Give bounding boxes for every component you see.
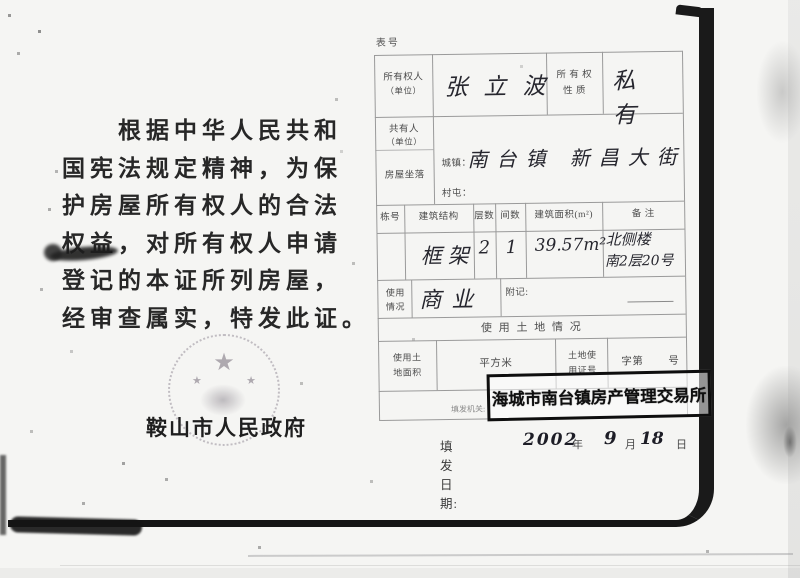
ownership-value: 私有 (612, 61, 683, 130)
cell-remark-line2: 南2层20号 (605, 250, 674, 271)
land-cert-suffix: 号 (668, 353, 679, 368)
cell-area: 39.57m² (535, 235, 607, 256)
issuing-org-label: 填发机关: (451, 403, 485, 414)
preamble-line: 权益，对所有权人申请 (62, 225, 402, 263)
land-area-label: 地面积 (382, 365, 432, 379)
col-header-building-no: 栋号 (376, 209, 404, 223)
transaction-office-stamp: 海城市南台镇房产管理交易所 (487, 370, 712, 422)
ink-blob-bottom-left (10, 516, 142, 535)
ownership-label: 性 质 (548, 82, 600, 97)
land-section-title: 使 用 土 地 情 况 (378, 317, 686, 337)
col-header-floors: 层数 (473, 207, 495, 221)
national-emblem-star-icon: ★ (246, 374, 256, 387)
col-header-remark: 备 注 (602, 205, 684, 220)
preamble-line: 国宪法规定精神，为保 (62, 150, 402, 188)
ownership-label: 所 有 权 (548, 66, 600, 81)
grid-line (500, 278, 502, 316)
issue-date-year: 2002 (523, 430, 578, 450)
grid-line (375, 149, 433, 151)
land-cert-label: 土地使 (557, 348, 607, 362)
owner-value: 张立波 (444, 66, 561, 102)
page-edge-left-mark (0, 455, 6, 535)
grid-line (378, 337, 686, 342)
location-town-value: 南台镇 新昌大街 (467, 141, 686, 173)
preamble-line: 登记的本证所列房屋， (62, 262, 402, 300)
col-header-structure: 建筑结构 (404, 208, 473, 223)
issue-date-day-unit: 日 (676, 436, 687, 452)
location-label: 房屋坐落 (378, 166, 432, 181)
scan-crease-line (60, 565, 800, 566)
form-number-label: 表号 (376, 34, 400, 49)
grid-line (411, 279, 413, 317)
handwritten-dash (627, 301, 673, 303)
cell-structure: 框架 (421, 240, 475, 271)
certificate-form: 表号 所有权人 （单位） 张立波 所 有 权 性 质 私有 (374, 51, 687, 420)
owner-label: （单位） (376, 84, 430, 97)
issue-date-label: 填发日期: (440, 436, 458, 512)
owner-label: 所有权人 (376, 68, 430, 83)
usage-label: 情况 (380, 300, 410, 313)
land-cert-prefix: 字第 (621, 353, 643, 368)
co-owner-label: 共有人 (377, 120, 431, 135)
grid-line (602, 52, 604, 114)
land-area-label: 使用土 (382, 350, 432, 364)
issue-date-month-unit: 月 (625, 436, 636, 452)
appendix-label: 附记: (505, 284, 528, 298)
certificate-preamble: 根据中华人民共和 国宪法规定精神，为保 护房屋所有权人的合法 权益，对所有权人申… (62, 112, 402, 337)
usage-value: 商业 (419, 281, 483, 314)
scan-bottom-strip (0, 568, 800, 578)
scan-crease-line (248, 553, 793, 557)
cell-floors: 2 (479, 237, 491, 258)
location-village-label: 村屯： (442, 185, 472, 199)
preamble-line: 经审查属实，特发此证。 (62, 300, 402, 338)
grid-line (377, 276, 685, 281)
scan-noise-edge (788, 0, 800, 578)
land-area-unit: 平方米 (436, 354, 555, 371)
issuer-name: 鞍山市人民政府 (146, 412, 307, 442)
preamble-line: 护房屋所有权人的合法 (62, 187, 402, 225)
national-emblem-star-icon: ★ (170, 348, 278, 377)
cell-remark-line1: 北侧楼 (605, 228, 650, 250)
co-owner-label: （单位） (377, 135, 431, 148)
cell-rooms: 1 (506, 237, 518, 258)
col-header-area: 建筑面积(m²) (525, 206, 602, 221)
ink-smudge (44, 244, 62, 261)
scan-specks (0, 0, 3, 3)
preamble-line: 根据中华人民共和 (62, 112, 402, 150)
issue-date-day: 18 (640, 429, 664, 449)
grid-line (432, 54, 435, 204)
issue-date-month: 9 (604, 428, 617, 449)
col-header-rooms: 间数 (495, 207, 525, 221)
issue-date-year-unit: 年 (572, 436, 583, 452)
usage-label: 使用 (380, 286, 410, 299)
scanned-certificate-page: 根据中华人民共和 国宪法规定精神，为保 护房屋所有权人的合法 权益，对所有权人申… (0, 0, 800, 578)
